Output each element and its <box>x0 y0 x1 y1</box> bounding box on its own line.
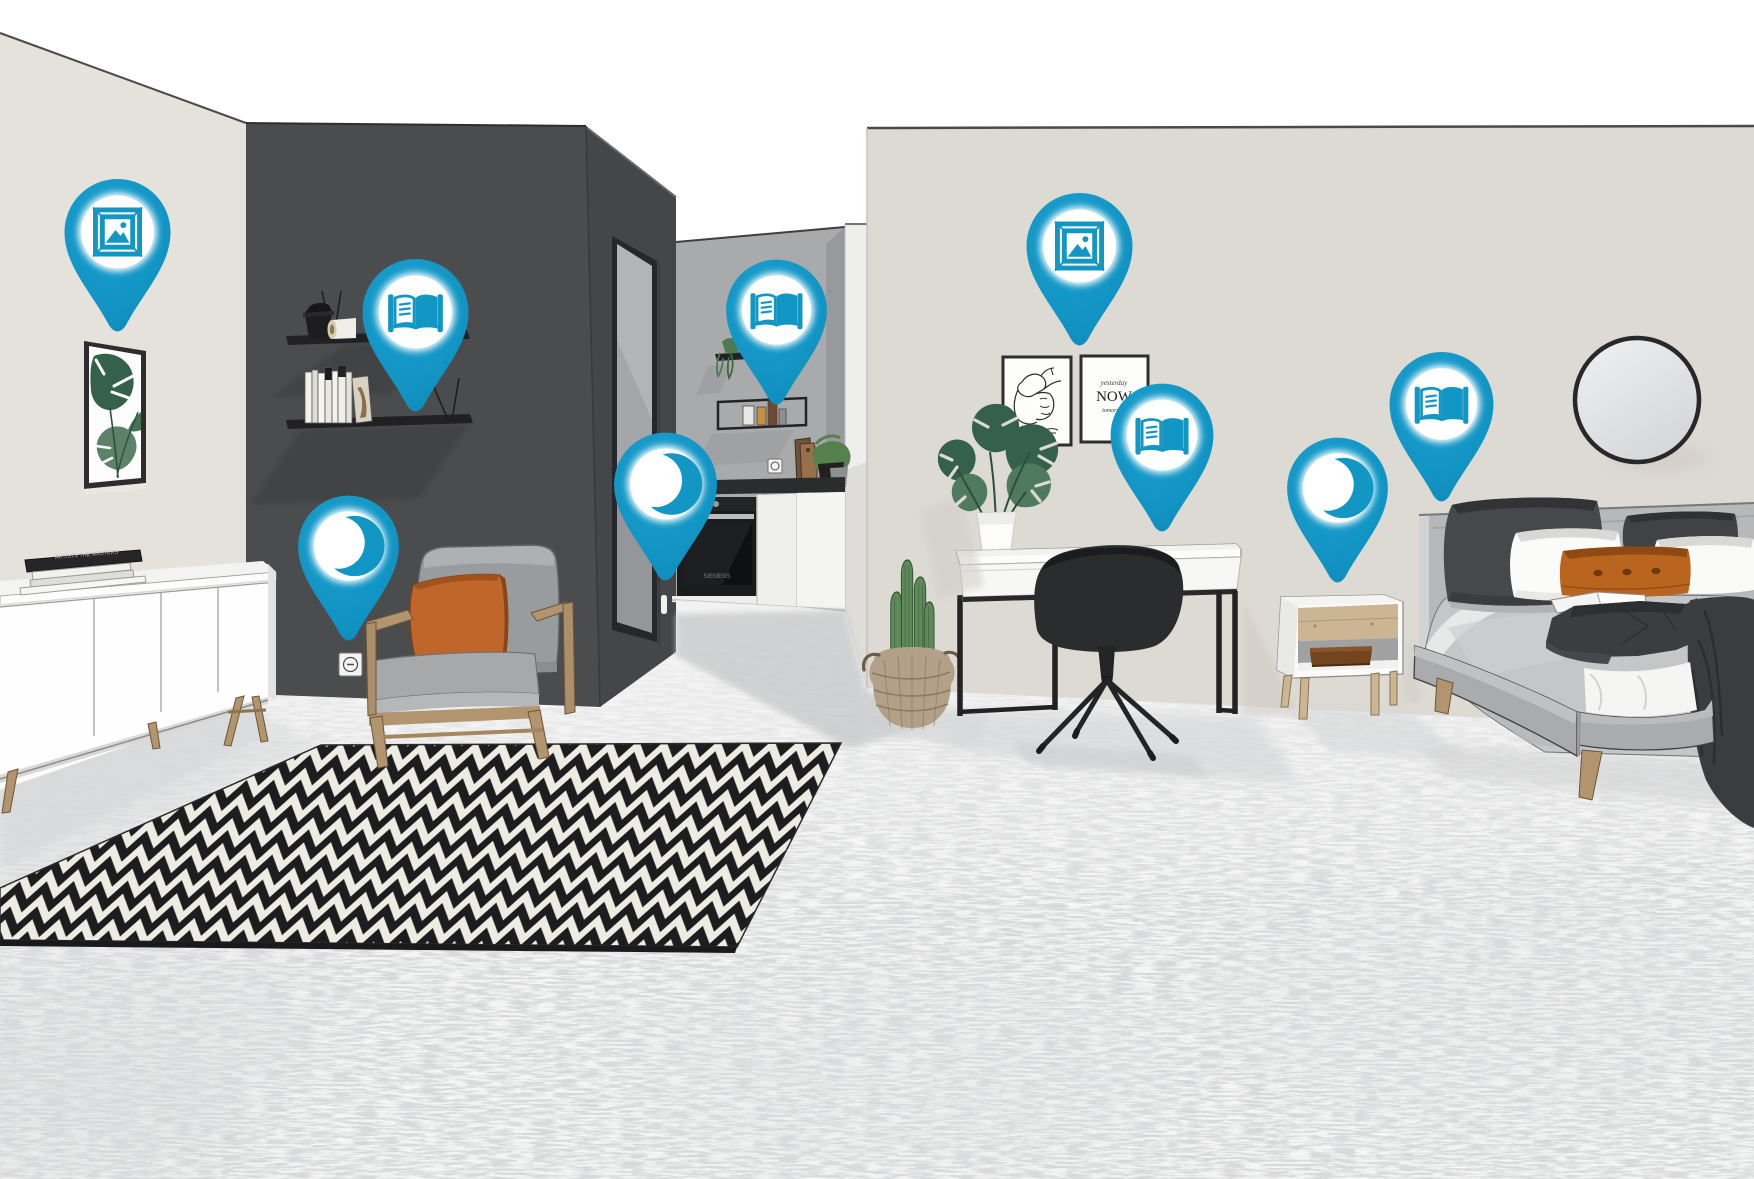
svg-text:SIEMENS: SIEMENS <box>703 574 730 580</box>
svg-text:yesterday: yesterday <box>1100 379 1128 387</box>
